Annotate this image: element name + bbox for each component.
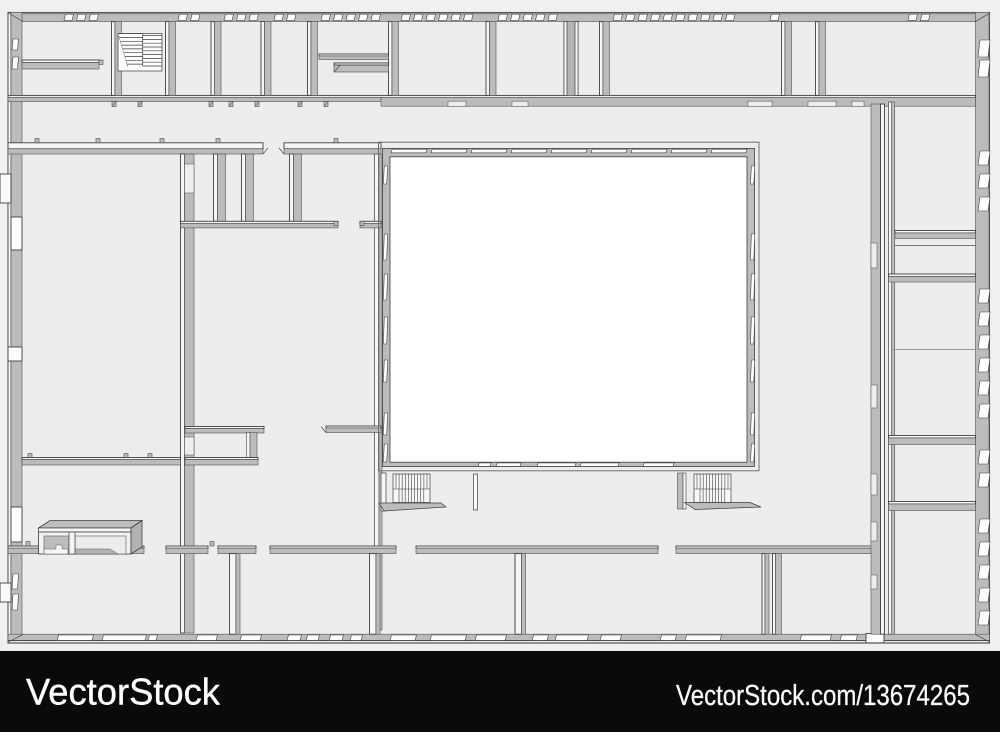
svg-text:VectorStock.com/13674265: VectorStock.com/13674265 <box>676 680 970 712</box>
svg-text:VectorStock: VectorStock <box>26 671 220 713</box>
